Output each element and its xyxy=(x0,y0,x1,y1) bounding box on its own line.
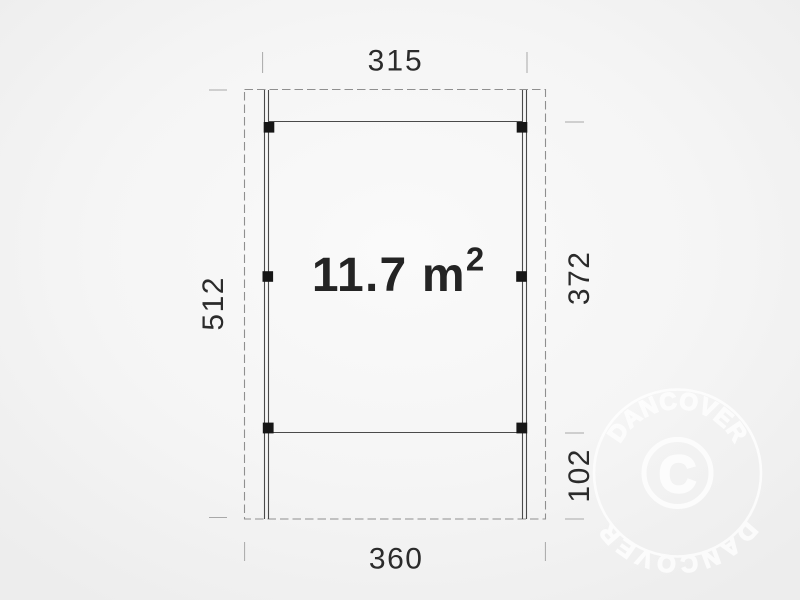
svg-text:360: 360 xyxy=(369,543,424,576)
svg-text:102: 102 xyxy=(563,448,596,503)
svg-text:512: 512 xyxy=(197,276,230,331)
svg-text:DANCOVER: DANCOVER xyxy=(593,516,763,577)
svg-text:11.7 m2: 11.7 m2 xyxy=(312,241,486,303)
svg-text:C: C xyxy=(659,446,697,504)
svg-text:315: 315 xyxy=(368,45,424,78)
svg-text:372: 372 xyxy=(563,251,596,306)
